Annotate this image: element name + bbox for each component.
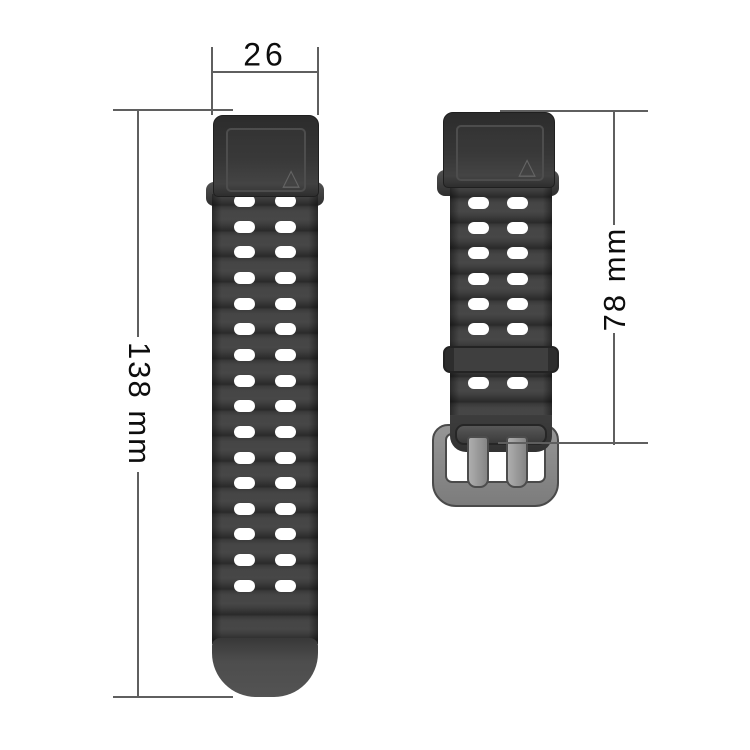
short-length-dimension-line-lower xyxy=(613,333,615,445)
length-dimension-line-lower xyxy=(137,472,139,698)
strap-hole xyxy=(275,426,296,438)
strap-hole xyxy=(234,221,255,233)
strap-hole xyxy=(275,580,296,592)
strap-hole xyxy=(507,222,528,234)
strap-hole xyxy=(234,528,255,540)
strap-hole xyxy=(234,323,255,335)
width-extension-line-right xyxy=(317,47,319,115)
strap-hole xyxy=(507,273,528,285)
strap-hole xyxy=(234,298,255,310)
width-dimension-line xyxy=(212,71,318,73)
length-dimension-label: 138 mm xyxy=(121,342,157,466)
strap-hole xyxy=(234,452,255,464)
long-strap-lug-block: △ xyxy=(213,115,319,197)
length-dimension-line-upper xyxy=(137,109,139,337)
strap-hole xyxy=(275,554,296,566)
strap-hole xyxy=(507,377,528,389)
strap-hole xyxy=(234,503,255,515)
short-strap-lug-block: △ xyxy=(443,112,555,188)
strap-hole xyxy=(234,580,255,592)
strap-hole xyxy=(275,503,296,515)
width-extension-line-left xyxy=(211,47,213,115)
strap-hole xyxy=(275,400,296,412)
short-length-dimension-line-upper xyxy=(613,110,615,225)
strap-hole xyxy=(234,477,255,489)
long-strap-lug-panel: △ xyxy=(226,128,306,192)
strap-hole xyxy=(234,426,255,438)
length-extension-line-top xyxy=(113,109,233,111)
strap-hole xyxy=(275,375,296,387)
strap-hole xyxy=(275,298,296,310)
keeper-loop xyxy=(443,346,559,373)
strap-hole xyxy=(468,323,489,335)
strap-hole xyxy=(468,222,489,234)
length-extension-line-bottom xyxy=(113,696,233,698)
short-length-extension-line-bottom xyxy=(498,442,648,444)
short-length-extension-line-top xyxy=(500,110,648,112)
strap-hole xyxy=(507,323,528,335)
strap-hole xyxy=(234,400,255,412)
strap-hole xyxy=(234,246,255,258)
strap-hole xyxy=(275,528,296,540)
strap-hole xyxy=(275,272,296,284)
strap-hole xyxy=(468,273,489,285)
strap-hole xyxy=(234,554,255,566)
strap-hole xyxy=(275,477,296,489)
short-strap-body xyxy=(450,186,552,420)
buckle-prong xyxy=(467,436,489,488)
strap-hole xyxy=(507,197,528,209)
strap-hole xyxy=(507,247,528,259)
long-strap-body xyxy=(212,194,318,644)
strap-hole xyxy=(275,452,296,464)
short-length-dimension-label: 78 mm xyxy=(597,227,633,332)
long-strap-tip xyxy=(212,638,318,697)
triangle-icon: △ xyxy=(518,155,536,178)
strap-hole xyxy=(275,349,296,361)
strap-hole xyxy=(507,298,528,310)
strap-hole xyxy=(234,349,255,361)
strap-hole xyxy=(468,197,489,209)
strap-hole xyxy=(468,377,489,389)
strap-hole xyxy=(234,375,255,387)
strap-hole xyxy=(468,298,489,310)
short-strap-lug-panel: △ xyxy=(456,125,544,181)
width-dimension-label: 26 xyxy=(243,37,287,74)
strap-hole xyxy=(275,323,296,335)
strap-hole xyxy=(468,247,489,259)
strap-hole xyxy=(234,272,255,284)
strap-hole xyxy=(275,221,296,233)
triangle-icon: △ xyxy=(282,166,300,189)
strap-hole xyxy=(275,246,296,258)
dimension-diagram-canvas: 26 138 mm △ △ xyxy=(0,0,750,750)
